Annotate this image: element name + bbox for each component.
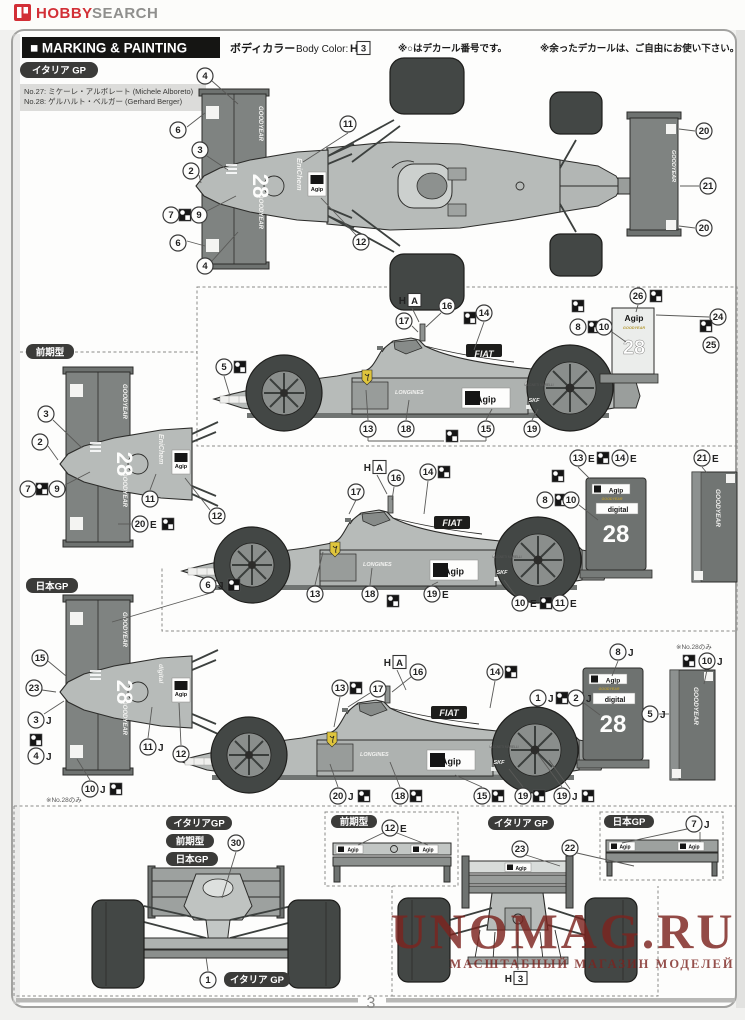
callout-number: 26: [633, 291, 644, 302]
decal-checker-icon: [410, 790, 422, 802]
decal-agip: Agip: [441, 757, 461, 767]
callout-number: 2: [37, 437, 42, 448]
callout-suffix: J: [572, 792, 578, 803]
decal-marelli: MAGNETI MARELLI: [492, 555, 521, 559]
callout-number: 13: [310, 589, 321, 600]
decal-checker-icon: [464, 312, 476, 324]
decal-digital: digital: [605, 697, 626, 704]
callout-number: 9: [196, 210, 201, 221]
callout-number: 11: [343, 119, 354, 130]
early-box-label: 前期型: [340, 816, 369, 828]
callout-number: 19: [527, 424, 538, 435]
callout-number: 17: [399, 316, 410, 327]
callout-number: 9: [54, 484, 59, 495]
decal-agip: Agip: [476, 395, 496, 405]
callout-suffix: J: [586, 694, 592, 705]
callout-number: 5: [221, 362, 227, 373]
callout-number: 19: [518, 791, 529, 802]
callout-number: 20: [333, 791, 344, 802]
decal-checker-icon: [505, 666, 517, 678]
callout-number: 13: [363, 424, 374, 435]
paint-code-value: A: [396, 658, 403, 669]
callout-suffix: J: [158, 743, 164, 754]
decal-goodyear: GOODYEAR: [121, 472, 127, 508]
callout-suffix: J: [717, 657, 723, 668]
callout-number: 10: [566, 495, 577, 506]
callout-number: 7: [691, 819, 696, 830]
scanned-instruction-sheet: HOBBY SEARCH ■ MARKING & PAINTING ボディカラー…: [0, 0, 745, 1020]
decal-checker-icon: [358, 790, 370, 802]
callout-number: 21: [697, 453, 708, 464]
decal-longines: LONGINES: [395, 390, 424, 396]
footer-rule-left: [16, 998, 358, 1003]
callout-number: 12: [176, 749, 187, 760]
callout-suffix: J: [704, 820, 710, 831]
decal-checker-icon: [492, 790, 504, 802]
decal-digital: digital: [157, 664, 164, 683]
decal-marelli: MAGNETI MARELLI: [524, 383, 553, 387]
paint-code-value: 3: [518, 974, 523, 985]
callout-number: 23: [515, 844, 526, 855]
decal-checker-icon: [540, 597, 552, 609]
front-wheel-right: [288, 900, 340, 988]
callout-number: 20: [699, 126, 710, 137]
hobbysearch-logo-icon: [14, 4, 31, 21]
callout-suffix: E: [630, 454, 637, 465]
body-color-label-jp: ボディカラー: [230, 41, 295, 55]
decal-agip: Agip: [609, 488, 623, 495]
callout-suffix: E: [588, 454, 595, 465]
callout-number: 4: [202, 71, 208, 82]
callout-number: 17: [351, 487, 362, 498]
callout-number: 8: [575, 322, 580, 333]
decal-race-number: 28: [112, 680, 137, 704]
sheet-svg: HOBBY SEARCH ■ MARKING & PAINTING ボディカラー…: [0, 0, 745, 1020]
body-color-number: 3: [361, 44, 366, 55]
brand-hobby: HOBBY: [36, 5, 93, 22]
callout-number: 8: [615, 647, 620, 658]
decal-goodyear: GOODYEAR: [692, 687, 699, 725]
decal-checker-icon: [552, 470, 564, 482]
decal-checker-icon: [597, 452, 609, 464]
decal-agip: Agip: [175, 692, 188, 698]
decal-goodyear: GOODYEAR: [121, 700, 127, 736]
callout-number: 20: [699, 223, 710, 234]
callout-suffix: J: [628, 648, 634, 659]
decal-checker-icon: [234, 361, 246, 373]
cockpit-front: [203, 879, 233, 897]
decal-enichem: EniChem: [157, 434, 164, 464]
decal-goodyear: GOODYEAR: [257, 194, 263, 230]
page-number: 3: [367, 995, 376, 1012]
watermark-subtitle: МАСШТАБНЫЙ МАГАЗИН МОДЕЛЕЙ: [449, 957, 734, 971]
decal-race-number: 28: [112, 452, 137, 476]
note-text: ※No.28のみ: [46, 796, 82, 804]
callout-number: 8: [542, 495, 547, 506]
paint-code-value: A: [411, 296, 418, 307]
note-text: ※No.28のみ: [676, 643, 712, 651]
callout-number: 7: [25, 484, 30, 495]
decal-longines: LONGINES: [360, 752, 389, 758]
callout-number: 15: [35, 653, 46, 664]
callout-number: 19: [427, 589, 438, 600]
paint-code-letter: H: [364, 463, 371, 474]
body-color-label-en: Body Color:: [296, 44, 348, 55]
decal-checker-icon: [683, 655, 695, 667]
decal-goodyear: GOODYEAR: [623, 326, 645, 330]
callout-suffix: E: [400, 824, 407, 835]
callout-number: 10: [702, 656, 713, 667]
brand-search: SEARCH: [92, 5, 158, 22]
decal-goodyear: GOODYEAR: [599, 687, 620, 691]
decal-agip: Agip: [347, 848, 358, 854]
front-wheel-left: [92, 900, 144, 988]
decal-checker-icon: [110, 783, 122, 795]
callout-number: 11: [143, 742, 154, 753]
decal-fiat: FIAT: [442, 518, 463, 528]
japan-box-label: 日本GP: [613, 816, 646, 828]
decal-agip: Agip: [444, 567, 464, 577]
japan-gp-badge-label: 日本GP: [36, 581, 69, 593]
decal-goodyear: GOODYEAR: [602, 497, 623, 501]
callout-suffix: J: [46, 752, 52, 763]
callout-number: 11: [145, 494, 156, 505]
callout-suffix: J: [348, 792, 354, 803]
callout-number: 13: [335, 683, 346, 694]
decal-race-number: 28: [600, 711, 627, 738]
decal-race-number: 28: [623, 337, 645, 359]
watermark-title: UNOMAG.RU: [390, 903, 735, 959]
driver-1: No.27: ミケーレ・アルボレート (Michele Alboreto): [24, 87, 194, 96]
decal-agip: Agip: [688, 845, 699, 851]
decal-agip: Agip: [606, 678, 620, 685]
italy-rear-label: イタリア GP: [494, 818, 549, 830]
callout-number: 22: [565, 843, 576, 854]
callout-number: 10: [599, 322, 610, 333]
callout-number: 18: [365, 589, 376, 600]
callout-number: 3: [197, 145, 202, 156]
decal-agip: Agip: [625, 313, 644, 323]
early-type-badge-label: 前期型: [36, 347, 65, 359]
callout-suffix: E: [712, 454, 719, 465]
callout-number: 16: [413, 667, 424, 678]
rear-wheel-bottom: [550, 234, 602, 276]
decal-marelli: MAGNETI MARELLI: [489, 745, 518, 749]
footer-rule-right: [386, 998, 735, 1003]
decal-digital: digital: [608, 507, 629, 514]
callout-number: 25: [706, 340, 717, 351]
callout-suffix: J: [660, 710, 666, 721]
callout-number: 30: [231, 838, 242, 849]
rear-wheel-top: [550, 92, 602, 134]
callout-number: 12: [212, 511, 223, 522]
callout-suffix: E: [530, 599, 537, 610]
callout-number: 3: [33, 715, 38, 726]
paint-code-letter: H: [384, 658, 391, 669]
callout-number: 14: [479, 308, 490, 319]
callout-number: 24: [713, 312, 724, 323]
callout-number: 14: [490, 667, 501, 678]
site-header: HOBBY SEARCH: [14, 4, 158, 22]
callout-number: 13: [573, 453, 584, 464]
decal-goodyear: GOODYEAR: [714, 489, 721, 527]
callout-number: 16: [442, 301, 453, 312]
callout-number: 7: [168, 210, 173, 221]
callout-number: 6: [175, 238, 180, 249]
callout-suffix: J: [218, 581, 224, 592]
front-label-japan: 日本GP: [176, 854, 209, 866]
callout-suffix: E: [150, 520, 157, 531]
decal-skf: SKF: [497, 570, 509, 576]
decal-agip: Agip: [515, 866, 526, 872]
callout-number: 4: [202, 261, 208, 272]
decal-checker-icon: [700, 320, 712, 332]
callout-number: 17: [373, 684, 384, 695]
callout-number: 18: [395, 791, 406, 802]
decal-checker-icon: [228, 579, 240, 591]
decal-checker-icon: [162, 518, 174, 530]
decal-checker-icon: [438, 466, 450, 478]
decal-checker-icon: [556, 692, 568, 704]
callout-number: 21: [703, 181, 714, 192]
decal-note-1: ※○はデカール番号です。: [398, 43, 507, 55]
front-wheel-top: [390, 58, 464, 114]
italy-gp-badge-label: イタリア GP: [32, 65, 87, 77]
decal-enichem: EniChem: [295, 158, 304, 191]
callout-number: 1: [205, 975, 211, 986]
callout-number: 12: [356, 237, 367, 248]
callout-number: 11: [555, 598, 566, 609]
callout-number: 10: [85, 784, 96, 795]
decal-skf: SKF: [494, 760, 506, 766]
decal-goodyear: GOODYEAR: [121, 612, 127, 648]
decal-checker-icon: [36, 483, 48, 495]
callout-number: 6: [205, 580, 210, 591]
decal-race-number: 28: [603, 521, 630, 548]
decal-note-2: ※余ったデカールは、ご自由にお使い下さい。: [540, 43, 739, 55]
decal-checker-icon: [387, 595, 399, 607]
callout-number: 15: [477, 791, 488, 802]
decal-checker-icon: [650, 290, 662, 302]
decal-checker-icon: [30, 734, 42, 746]
decal-longines: LONGINES: [363, 562, 392, 568]
paint-code-letter: H: [399, 296, 406, 307]
callout-number: 16: [391, 473, 402, 484]
callout-suffix: J: [100, 785, 106, 796]
callout-number: 6: [175, 125, 180, 136]
driver-2: No.28: ゲルハルト・ベルガー (Gerhard Berger): [24, 96, 183, 106]
callout-number: 3: [43, 409, 48, 420]
decal-skf: SKF: [529, 398, 541, 404]
callout-number: 2: [188, 166, 193, 177]
callout-number: 2: [573, 693, 578, 704]
callout-number: 18: [401, 424, 412, 435]
callout-number: 14: [423, 467, 434, 478]
decal-checker-icon: [446, 430, 458, 442]
callout-suffix: E: [570, 599, 577, 610]
decal-checker-icon: [179, 209, 191, 221]
front-label-early: 前期型: [176, 836, 205, 848]
decal-agip: Agip: [422, 848, 433, 854]
callout-suffix: J: [548, 694, 554, 705]
page-title: ■ MARKING & PAINTING: [30, 41, 187, 56]
callout-number: 15: [481, 424, 492, 435]
callout-number: 14: [615, 453, 626, 464]
callout-suffix: E: [442, 590, 449, 601]
callout-number: 20: [135, 519, 146, 530]
decal-race-number: 28: [248, 174, 273, 198]
decal-fiat: FIAT: [474, 349, 495, 359]
callout-number: 12: [385, 823, 396, 834]
decal-agip: Agip: [175, 464, 188, 470]
cockpit-opening: [417, 173, 447, 199]
callout-number: 4: [33, 751, 39, 762]
decal-checker-icon: [572, 300, 584, 312]
callout-number: 19: [557, 791, 568, 802]
callout-suffix: J: [46, 716, 52, 727]
decal-fiat: FIAT: [439, 708, 460, 718]
decal-checker-icon: [533, 790, 545, 802]
paint-code-value: A: [376, 463, 383, 474]
decal-goodyear: GOODYEAR: [257, 106, 263, 142]
paint-code-letter: H: [505, 974, 512, 985]
callout-number: 10: [515, 598, 526, 609]
decal-checker-icon: [350, 682, 362, 694]
decal-goodyear: GOODYEAR: [121, 384, 127, 420]
callout-number: 5: [647, 709, 653, 720]
decal-agip: Agip: [311, 187, 324, 193]
decal-goodyear: GOODYEAR: [670, 150, 676, 182]
front-bottom-label: イタリア GP: [230, 974, 285, 986]
callout-number: 1: [535, 693, 541, 704]
front-label-italy: イタリアGP: [173, 818, 225, 830]
decal-agip: Agip: [619, 845, 630, 851]
callout-number: 23: [29, 683, 40, 694]
decal-checker-icon: [582, 790, 594, 802]
